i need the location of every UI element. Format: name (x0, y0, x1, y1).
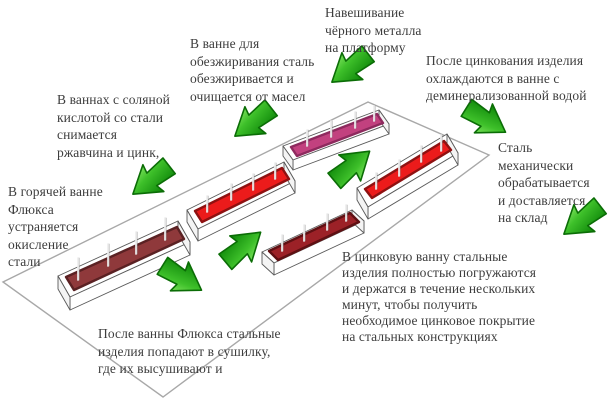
label-line: механически (498, 157, 590, 175)
label-flux: В горячей ванне Флюкса устраняется окисл… (8, 183, 103, 271)
label-acid: В ваннах с соляной кислотой со стали сни… (57, 91, 170, 161)
label-cooling: После цинкования изделия охлаждаются в в… (426, 52, 587, 105)
label-line: В ваннах с соляной (57, 91, 170, 109)
label-line: Флюкса (8, 201, 103, 219)
label-line: ржавчина и цинк, (57, 144, 170, 162)
label-line: обрабатывается (498, 174, 590, 192)
label-hanging: Навешивание чёрного металла на платформу (325, 4, 422, 57)
label-line: В ванне для (190, 35, 314, 53)
label-line: После цинкования изделия (426, 52, 587, 70)
label-line: кислотой со стали (57, 109, 170, 127)
label-drying: После ванны Флюкса стальные изделия попа… (98, 325, 281, 378)
label-line: где их высушивают и (98, 360, 281, 378)
label-line: Сталь (498, 139, 590, 157)
label-line: После ванны Флюкса стальные (98, 325, 281, 343)
label-mechanical: Сталь механически обрабатывается и доста… (498, 139, 590, 227)
label-line: В цинковую ванну стальные (342, 249, 536, 265)
galvanizing-process-diagram: Навешивание чёрного металла на платформу… (0, 0, 610, 404)
label-line: В горячей ванне (8, 183, 103, 201)
label-line: на стальных конструкциях (342, 329, 536, 345)
label-line: необходимое цинковое покрытие (342, 313, 536, 329)
label-line: чёрного металла (325, 22, 422, 40)
label-line: деминерализованной водой (426, 87, 587, 105)
label-line: очищается от масел (190, 88, 314, 106)
label-degreasing: В ванне для обезжиривания сталь обезжири… (190, 35, 314, 105)
label-line: и доставляется (498, 192, 590, 210)
label-zinc: В цинковую ванну стальные изделия полнос… (342, 249, 536, 345)
label-line: минут, чтобы получить (342, 297, 536, 313)
label-line: стали (8, 253, 103, 271)
label-line: обезжиривания сталь (190, 53, 314, 71)
label-line: Навешивание (325, 4, 422, 22)
label-line: окисление (8, 236, 103, 254)
label-line: и держатся в течение нескольких (342, 281, 536, 297)
label-line: на склад (498, 209, 590, 227)
label-line: на платформу (325, 39, 422, 57)
label-line: изделия попадают в сушилку, (98, 343, 281, 361)
label-line: снимается (57, 126, 170, 144)
label-line: изделия полностью погружаются (342, 265, 536, 281)
label-line: обезжиривается и (190, 70, 314, 88)
label-line: устраняется (8, 218, 103, 236)
label-line: охлаждаются в ванне с (426, 70, 587, 88)
